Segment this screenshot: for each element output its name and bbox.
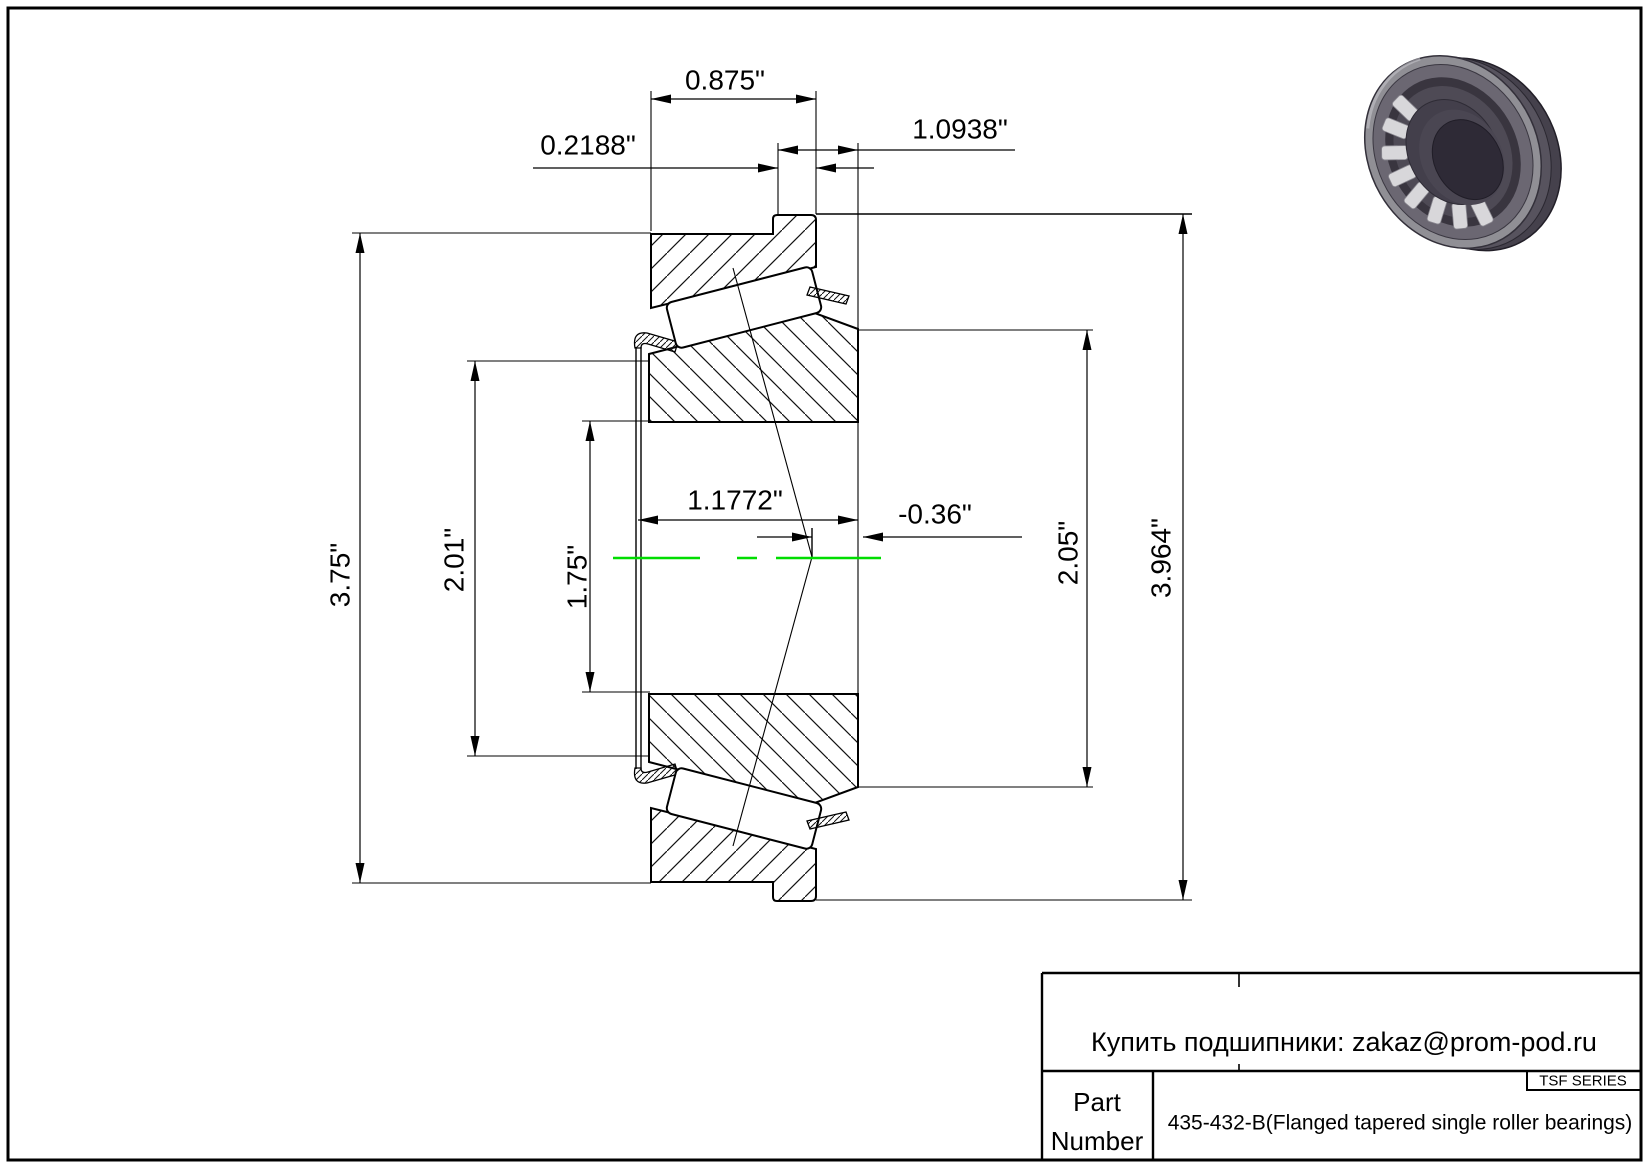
drawing-page: 0.875" 0.2188" 1.0938" 1.1772" -0.36" 3.… [0, 0, 1649, 1167]
dim-label-flange-od: 3.964" [1146, 518, 1177, 598]
dim-label-overall-width: 1.0938" [912, 114, 1008, 145]
dim-label-flange-width: 0.2188" [540, 130, 636, 161]
dim-label-cup-od: 3.75" [325, 543, 356, 607]
part-number-description: 435-432-B(Flanged tapered single roller … [1168, 1112, 1633, 1135]
dim-label-cone-width: 1.1772" [687, 485, 783, 516]
bearing-technical-drawing: 0.875" 0.2188" 1.0938" 1.1772" -0.36" 3.… [0, 0, 1649, 1167]
dim-label-cup-width: 0.875" [685, 65, 765, 96]
bearing-3d-render [1330, 15, 1595, 291]
part-label-line1: Part [1073, 1087, 1121, 1117]
series-label: TSF SERIES [1539, 1073, 1627, 1090]
dim-label-rib-od: 2.05" [1053, 521, 1084, 585]
dim-label-bore: 1.75" [562, 545, 593, 609]
title-block: Купить подшипники: zakaz@prom-pod.ru Par… [1042, 973, 1641, 1160]
dim-label-cage-od: 2.01" [439, 528, 470, 592]
part-label-line2: Number [1051, 1126, 1144, 1156]
supplier-contact-text: Купить подшипники: zakaz@prom-pod.ru [1091, 1027, 1597, 1057]
dim-label-effective-center: -0.36" [898, 499, 972, 530]
